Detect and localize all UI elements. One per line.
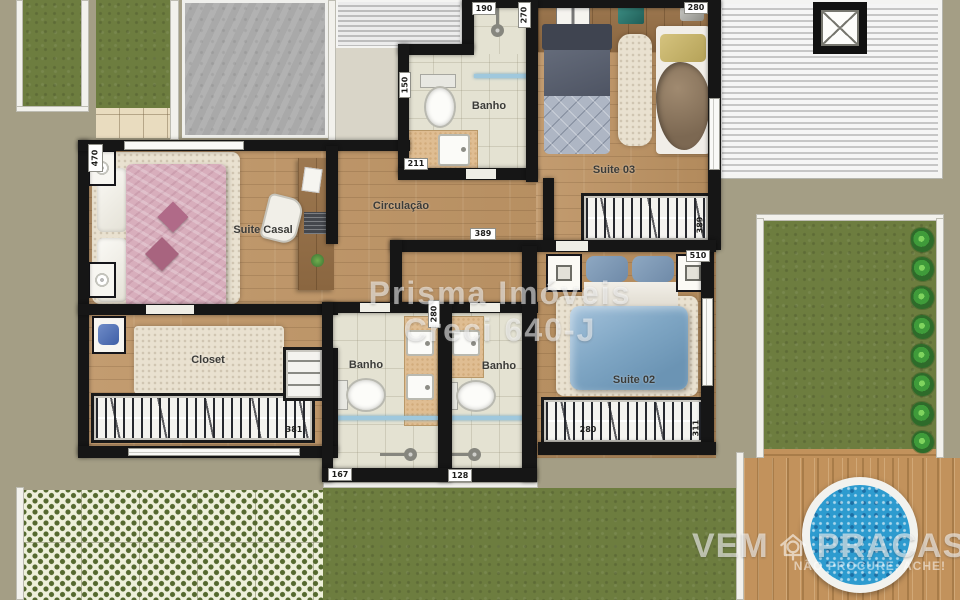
sink-icon bbox=[406, 374, 434, 400]
dimension-label: 211 bbox=[404, 158, 428, 170]
boundary-wall bbox=[170, 0, 179, 140]
grass-yard-bottom bbox=[323, 488, 744, 600]
boundary-wall bbox=[328, 0, 336, 142]
suite03-wardrobe bbox=[584, 196, 708, 240]
boundary-wall bbox=[16, 106, 89, 112]
shower-head-icon bbox=[491, 24, 504, 37]
plant-icon bbox=[911, 344, 934, 368]
dimension-label: 389 bbox=[694, 212, 706, 238]
watermark-line2: Creci 640-J bbox=[280, 314, 720, 346]
plant-icon bbox=[912, 373, 934, 396]
boundary-wall bbox=[756, 218, 764, 458]
suite03-rug bbox=[618, 34, 652, 146]
plant-icon bbox=[912, 315, 934, 339]
door-opening bbox=[556, 241, 588, 251]
room-label-banho-esquerdo: Banho bbox=[330, 359, 402, 372]
plant-icon bbox=[912, 257, 934, 281]
dimension-label: 381 bbox=[282, 424, 306, 436]
shower-glass bbox=[474, 74, 534, 78]
double-bed-pink bbox=[126, 164, 226, 308]
wall bbox=[326, 146, 338, 244]
single-bed-brown-pillow bbox=[660, 34, 706, 62]
desk-plant-icon bbox=[311, 254, 324, 267]
wall bbox=[398, 44, 409, 174]
wall bbox=[390, 240, 716, 252]
brand-tagline: NÃO PROCURE, ACHE! bbox=[700, 560, 946, 572]
floor-plan-image: 190 270 150 211 280 470 389 389 510 280 … bbox=[0, 0, 960, 600]
room-label-banho-direito: Banho bbox=[463, 360, 535, 373]
closet-shelves bbox=[286, 350, 322, 398]
wall bbox=[543, 178, 554, 244]
boundary-wall bbox=[323, 482, 538, 488]
room-label-suite-casal: Suite Casal bbox=[213, 224, 313, 237]
watermark-line1: Prisma Imóveis bbox=[280, 277, 720, 309]
boundary-wall bbox=[756, 214, 944, 221]
laundry-basket-inner bbox=[98, 324, 119, 345]
boundary-wall bbox=[81, 0, 89, 112]
toilet-icon bbox=[456, 380, 496, 412]
door-opening bbox=[146, 305, 194, 314]
single-bed-gray-headboard bbox=[542, 24, 612, 50]
room-label-banho-superior: Banho bbox=[444, 100, 534, 113]
tile-path bbox=[96, 108, 172, 138]
boundary-wall bbox=[16, 0, 23, 112]
dimension-label: 190 bbox=[472, 2, 496, 15]
wall bbox=[462, 0, 720, 8]
dimension-label: 510 bbox=[686, 250, 710, 262]
skylight-x-icon bbox=[821, 10, 859, 46]
wall bbox=[322, 468, 537, 482]
desk-paper bbox=[301, 167, 322, 193]
boundary-wall bbox=[736, 452, 744, 600]
window bbox=[124, 141, 244, 150]
grass-patch-top-left-2 bbox=[96, 0, 172, 108]
plant-icon bbox=[911, 286, 934, 309]
boundary-wall bbox=[16, 487, 24, 600]
dimension-label: 150 bbox=[399, 72, 411, 98]
dimension-label: 280 bbox=[576, 424, 600, 436]
dresser-decor-teal bbox=[618, 6, 644, 24]
shower-glass bbox=[332, 416, 438, 420]
door-opening bbox=[466, 169, 496, 179]
dimension-label: 280 bbox=[684, 2, 708, 14]
shower-glass bbox=[450, 416, 526, 420]
exterior-side-strip bbox=[336, 48, 398, 146]
dimension-label: 270 bbox=[518, 2, 531, 28]
paver-grid-lawn bbox=[24, 490, 323, 600]
dimension-label: 389 bbox=[470, 228, 496, 240]
wall bbox=[538, 442, 716, 455]
window bbox=[709, 98, 720, 170]
single-bed-gray-quilt bbox=[544, 96, 610, 154]
room-label-circulacao: Circulação bbox=[346, 200, 456, 213]
dimension-label: 311 bbox=[690, 416, 702, 440]
shower-head-icon bbox=[404, 448, 417, 461]
plant-icon bbox=[911, 402, 934, 426]
single-bed-gray-blanket bbox=[544, 50, 610, 96]
room-label-suite-02: Suite 02 bbox=[584, 374, 684, 387]
concrete-pad bbox=[182, 0, 328, 138]
pergola-strip bbox=[336, 0, 462, 48]
brand-word1: VEM bbox=[692, 529, 769, 563]
plant-icon bbox=[911, 228, 934, 252]
plant-icon bbox=[912, 431, 934, 453]
grass-patch-top-left-1 bbox=[23, 0, 81, 108]
wall bbox=[78, 140, 89, 456]
room-label-closet: Closet bbox=[158, 354, 258, 367]
shower-head-icon bbox=[468, 448, 481, 461]
dimension-label: 167 bbox=[328, 468, 352, 481]
window bbox=[128, 448, 300, 456]
dimension-label: 128 bbox=[448, 469, 472, 482]
boundary-wall bbox=[936, 218, 944, 458]
speaker-icon bbox=[88, 262, 116, 298]
wall bbox=[398, 44, 474, 55]
suite02-wardrobe bbox=[544, 400, 704, 442]
room-label-suite-03: Suite 03 bbox=[564, 164, 664, 177]
closet-wardrobe bbox=[94, 396, 312, 440]
brand-word2: PRACASA bbox=[817, 529, 960, 563]
sink-icon bbox=[438, 134, 470, 166]
toilet-icon bbox=[346, 378, 386, 412]
dimension-label: 470 bbox=[88, 144, 103, 172]
